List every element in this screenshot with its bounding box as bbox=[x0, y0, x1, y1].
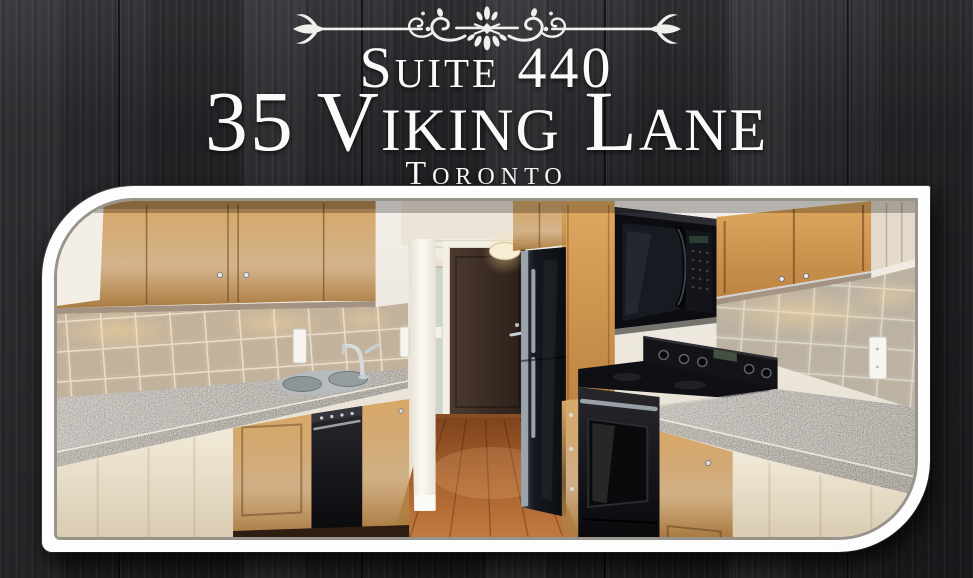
cabinet-knob bbox=[706, 460, 711, 465]
cabinet-door bbox=[233, 414, 311, 537]
light-switch bbox=[400, 327, 409, 357]
door-handle bbox=[511, 333, 522, 335]
left-cabinet-run bbox=[57, 201, 423, 537]
refrigerator bbox=[521, 247, 566, 517]
cabinet-knob bbox=[244, 272, 249, 277]
cabinet-knob bbox=[779, 276, 784, 281]
deadbolt bbox=[515, 323, 519, 327]
feature-sheet-cover: Suite 440 35 Viking Lane Toronto bbox=[0, 0, 973, 578]
upper-cabinets-left bbox=[57, 201, 376, 314]
top-shadow bbox=[57, 201, 915, 213]
cabinet-knob bbox=[803, 273, 808, 278]
power-outlet bbox=[869, 337, 886, 379]
photo-frame bbox=[42, 186, 930, 552]
light-switch bbox=[293, 329, 306, 363]
photo-border bbox=[54, 198, 918, 540]
cabinet-door bbox=[362, 399, 409, 531]
drawer-stack bbox=[562, 399, 578, 537]
cabinet-knob bbox=[217, 272, 222, 277]
street-address: 35 Viking Lane bbox=[0, 78, 973, 164]
kitchen-photo bbox=[57, 201, 915, 537]
dishwasher bbox=[311, 406, 362, 537]
doorbell bbox=[436, 327, 442, 338]
oven-door bbox=[578, 387, 659, 537]
microwave bbox=[615, 207, 717, 335]
right-cabinet-run bbox=[513, 201, 915, 537]
